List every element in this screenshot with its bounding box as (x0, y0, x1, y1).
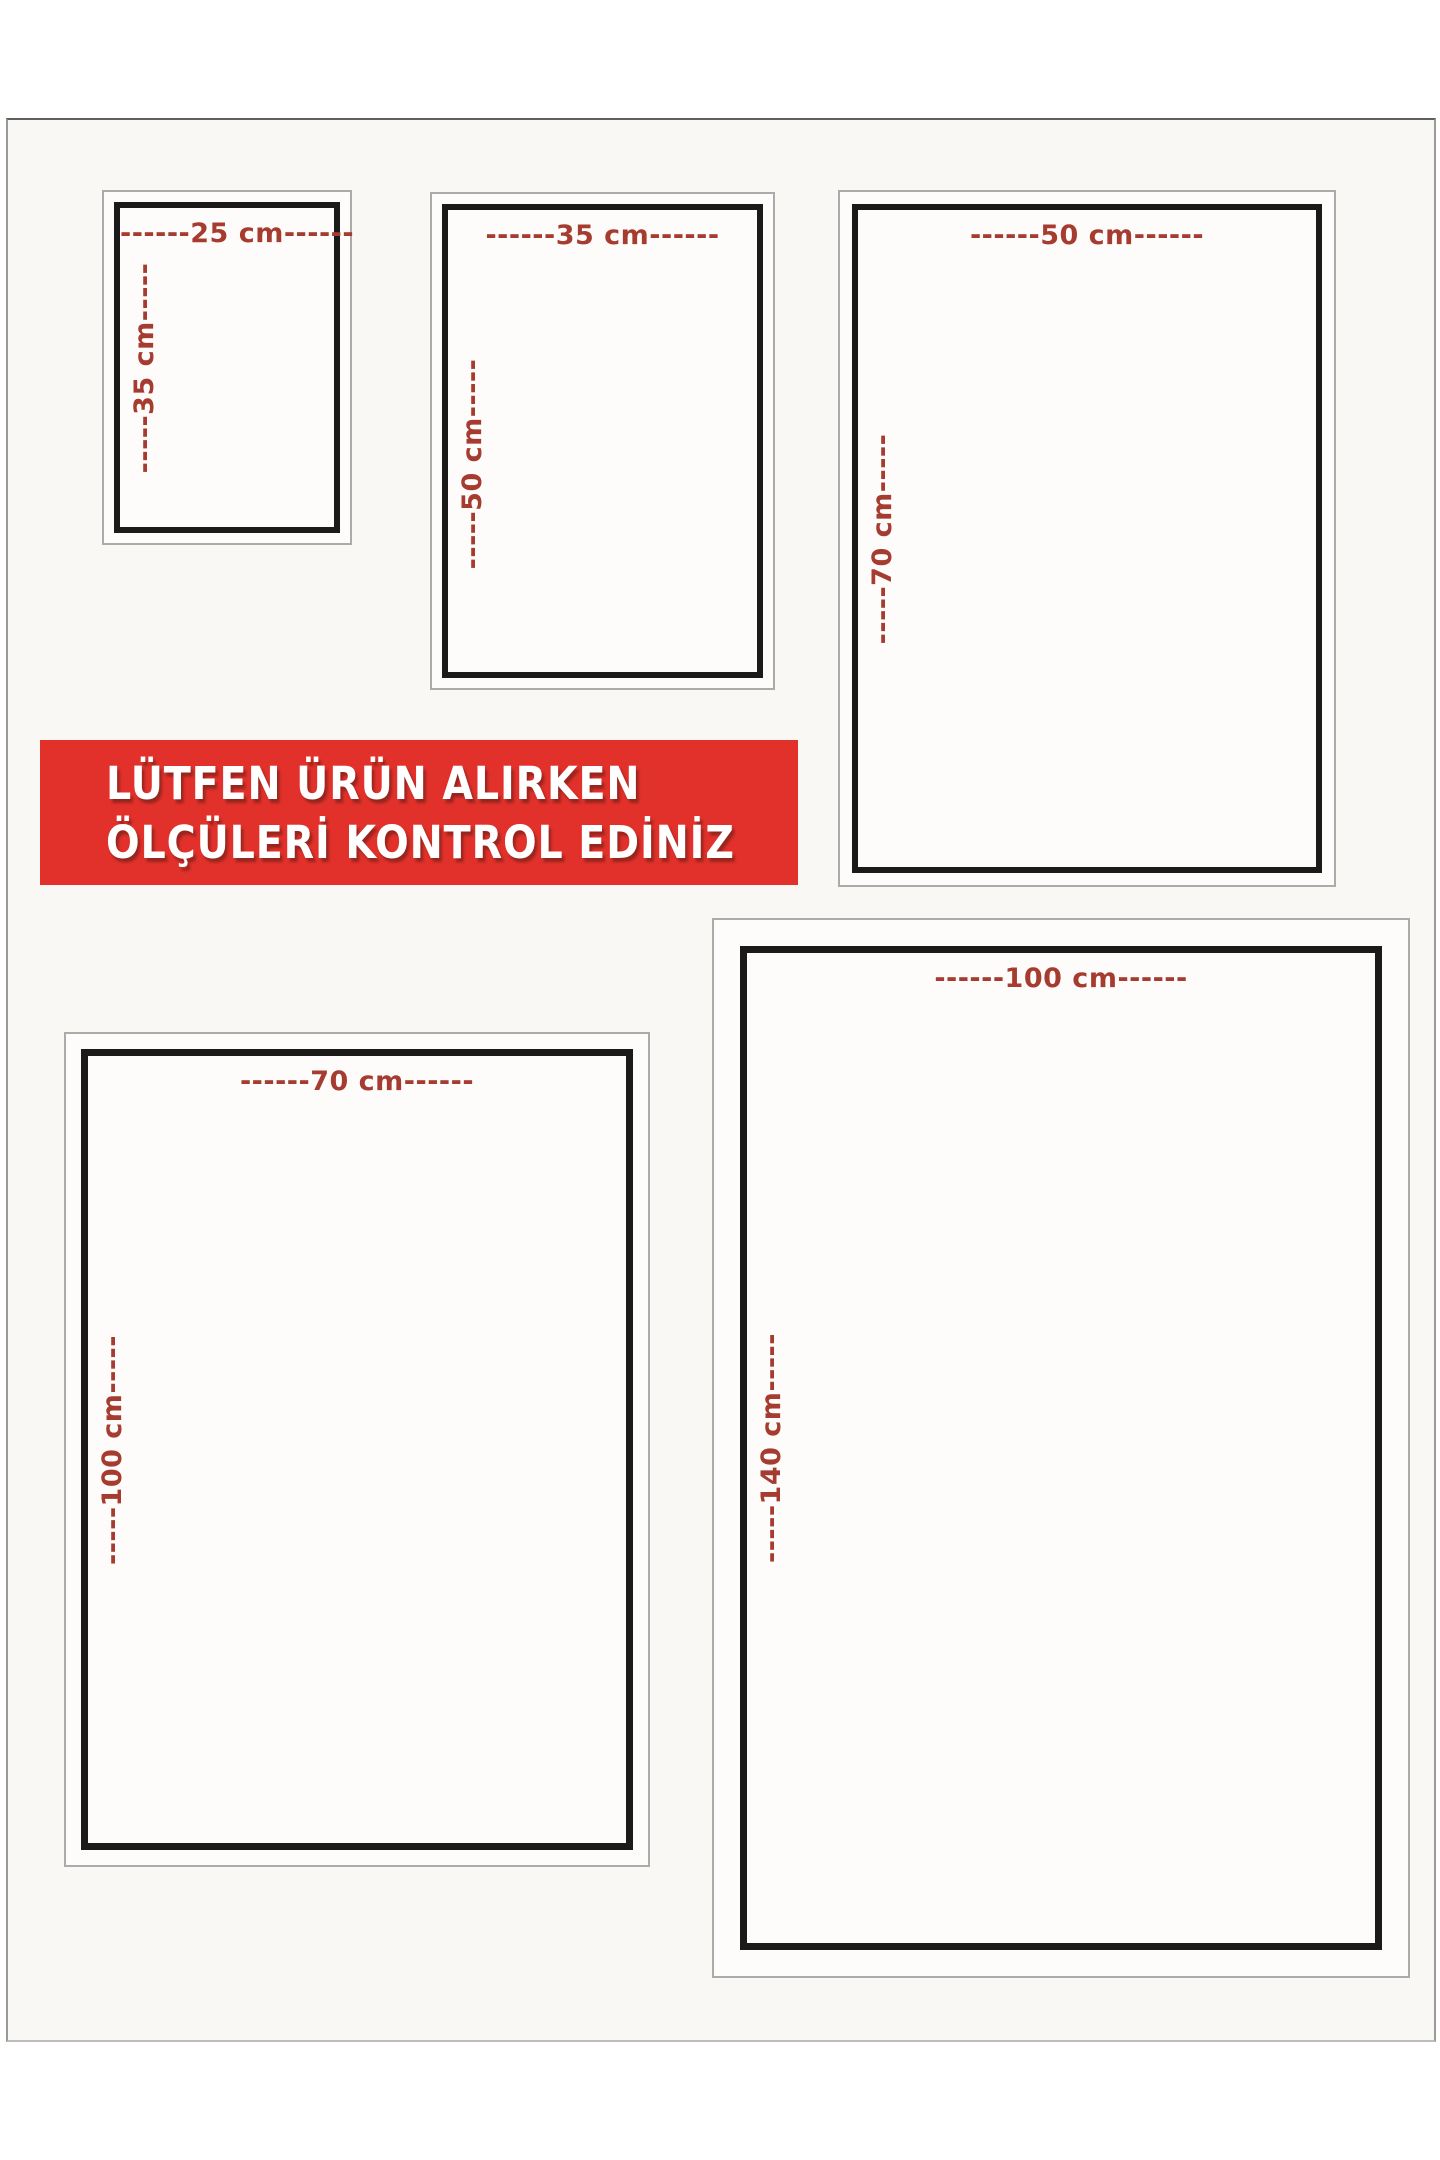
size-box-25x35: ------25 cm------ -----35 cm----- (102, 190, 352, 545)
size-box-35x50-frame: ------35 cm------ -----50 cm----- (442, 204, 763, 678)
width-dimension-label: ------35 cm------ (448, 220, 757, 252)
height-dimension-label: -----50 cm----- (457, 359, 488, 570)
size-box-70x100: ------70 cm------ -----100 cm----- (64, 1032, 650, 1867)
width-dimension-label: ------100 cm------ (747, 963, 1375, 995)
width-dimension-label: ------70 cm------ (88, 1066, 626, 1098)
size-box-100x140-frame: ------100 cm------ -----140 cm----- (740, 946, 1382, 1950)
size-box-35x50: ------35 cm------ -----50 cm----- (430, 192, 775, 690)
warning-banner-line1: LÜTFEN ÜRÜN ALIRKEN (106, 754, 715, 813)
height-dimension-label: -----70 cm----- (867, 433, 898, 644)
size-box-70x100-frame: ------70 cm------ -----100 cm----- (81, 1049, 633, 1850)
width-dimension-label: ------25 cm------ (120, 218, 334, 250)
width-dimension-label: ------50 cm------ (858, 220, 1316, 252)
size-chart-canvas: ------25 cm------ -----35 cm----- ------… (6, 118, 1436, 2042)
height-dimension-label: -----100 cm----- (97, 1335, 128, 1565)
height-dimension-label: -----35 cm----- (129, 262, 160, 473)
size-box-50x70-frame: ------50 cm------ -----70 cm----- (852, 204, 1322, 873)
warning-banner-line2: ÖLÇÜLERİ KONTROL EDİNİZ (106, 813, 715, 872)
warning-banner: LÜTFEN ÜRÜN ALIRKEN ÖLÇÜLERİ KONTROL EDİ… (40, 740, 798, 885)
size-box-100x140: ------100 cm------ -----140 cm----- (712, 918, 1410, 1978)
height-dimension-label: -----140 cm----- (756, 1333, 787, 1563)
size-box-50x70: ------50 cm------ -----70 cm----- (838, 190, 1336, 887)
size-box-25x35-frame: ------25 cm------ -----35 cm----- (114, 202, 340, 533)
